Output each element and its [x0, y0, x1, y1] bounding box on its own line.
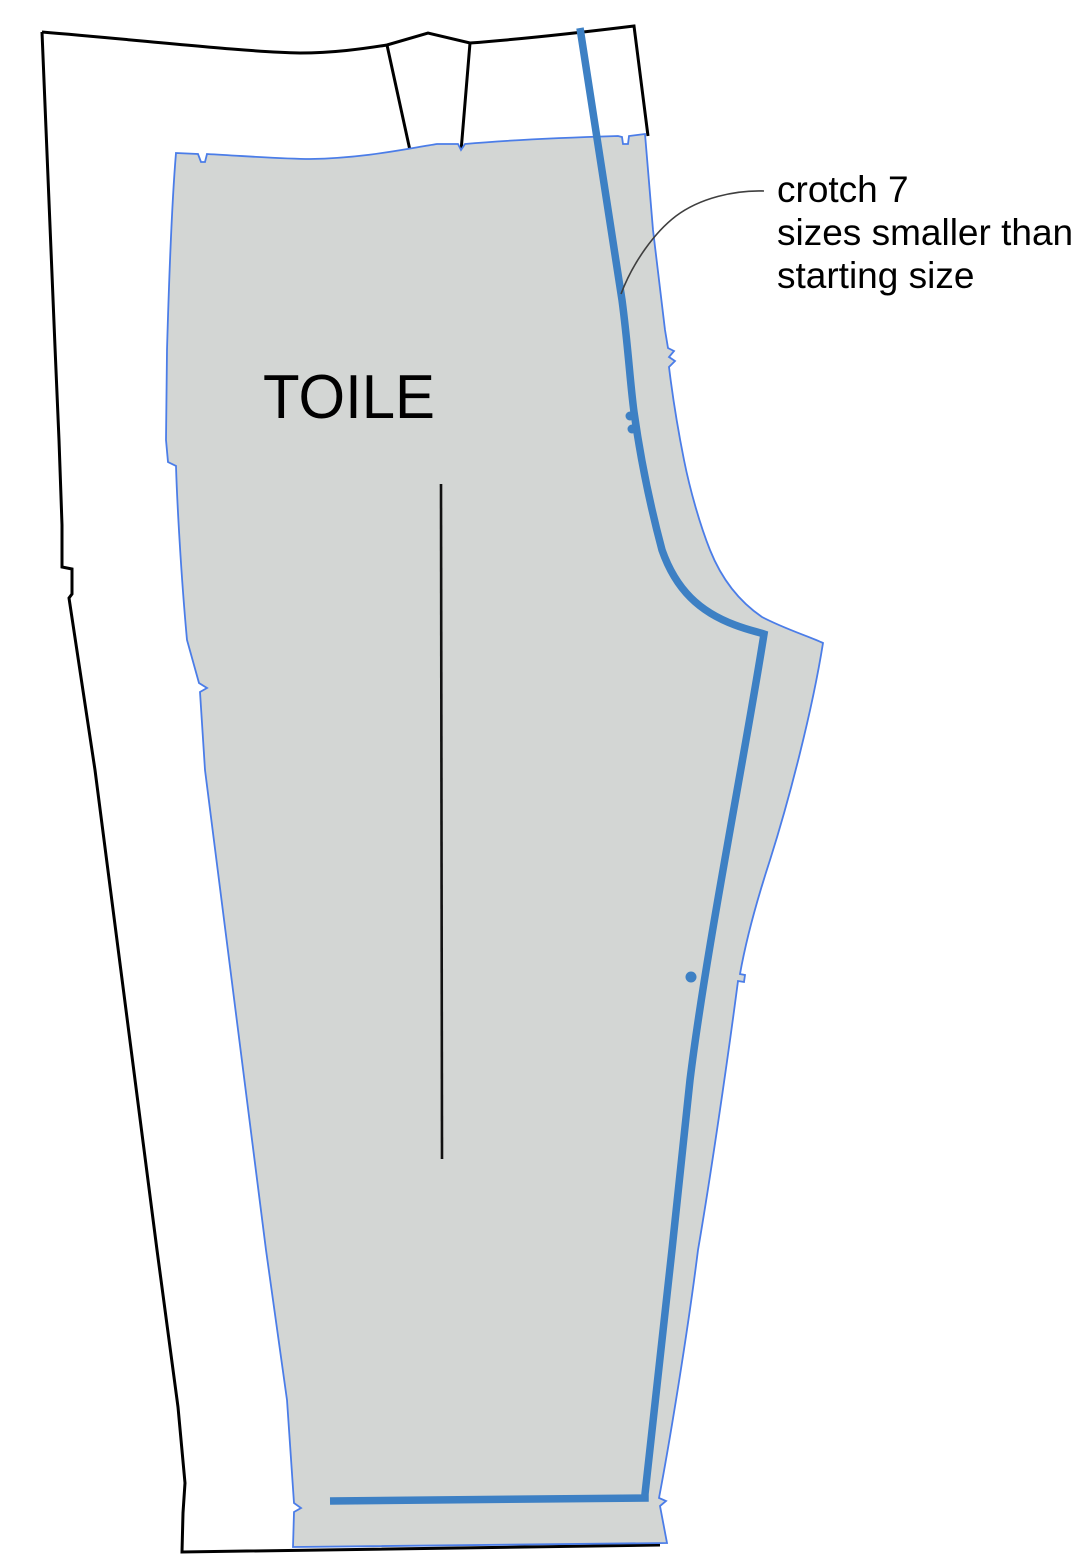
crotch-line-notch-bump [628, 425, 637, 434]
crotch-line-notch-bump [626, 412, 635, 421]
toile-label: TOILE [263, 363, 435, 432]
pattern-diagram-canvas: TOILE crotch 7 sizes smaller than starti… [0, 0, 1074, 1568]
annotation-text-line2: sizes smaller than [777, 212, 1073, 253]
grain-line [441, 484, 442, 1159]
crotch-line-notch-bump [686, 972, 697, 983]
annotation-text-line1: crotch 7 [777, 169, 909, 210]
pattern-diagram: TOILE crotch 7 sizes smaller than starti… [0, 0, 1074, 1568]
annotation-text-line3: starting size [777, 255, 974, 296]
